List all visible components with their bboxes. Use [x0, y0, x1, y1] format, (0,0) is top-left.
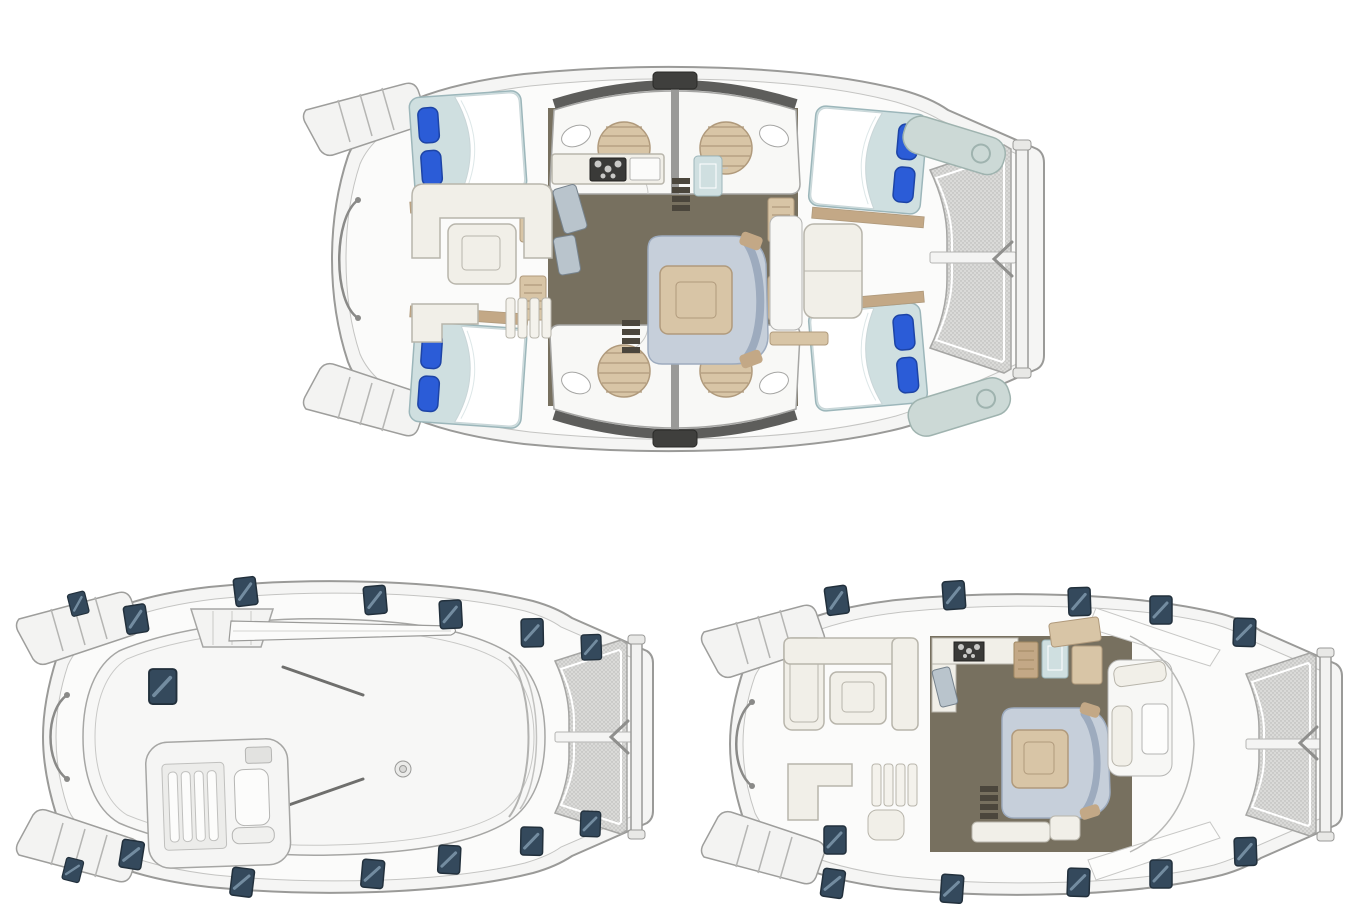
cabinet-right — [1072, 646, 1102, 684]
forward-table — [1142, 704, 1168, 754]
forward-beam — [1320, 652, 1331, 837]
forward-beam — [1016, 144, 1028, 374]
beam-cap-top — [1013, 140, 1031, 150]
beam-cap-bottom — [1013, 368, 1031, 378]
nav-panel — [694, 156, 722, 196]
forward-beam — [631, 639, 642, 835]
helm-seat — [868, 810, 904, 840]
stove — [954, 642, 984, 661]
fridge — [630, 158, 660, 180]
forward-bench — [1112, 706, 1132, 766]
lower-deck-plan — [300, 52, 1065, 467]
double-bed-aft-port — [409, 90, 528, 198]
trampoline — [930, 140, 1031, 378]
salon-table — [1012, 730, 1068, 788]
cockpit-table — [448, 224, 516, 284]
salon — [1002, 701, 1110, 821]
aft-bench-seat — [1050, 816, 1080, 840]
main-deck-plan — [700, 580, 1363, 909]
helm-seat — [234, 769, 270, 826]
beam-cap-top — [1317, 648, 1334, 657]
seat-panel — [770, 216, 802, 330]
cockpit-floor-hatch — [824, 826, 846, 854]
winch — [395, 761, 411, 777]
salon-table — [660, 266, 732, 334]
beam-cap-bottom — [628, 830, 645, 839]
trampoline-seam — [1246, 739, 1322, 749]
forward-cockpit — [1108, 660, 1172, 776]
aft-bench — [972, 822, 1050, 842]
beam-cap-top — [628, 635, 645, 644]
beam-cap-bottom — [1317, 832, 1334, 841]
instrument-pod — [245, 747, 272, 764]
trampoline — [1246, 648, 1334, 841]
exterior-top-view — [15, 565, 665, 909]
trampoline — [555, 635, 645, 839]
helm-station — [145, 738, 291, 869]
helm-seat-back — [232, 827, 275, 844]
cockpit-sofa-arm-right — [892, 638, 918, 730]
stove — [590, 158, 626, 181]
cockpit-table — [830, 672, 886, 724]
wood-step — [770, 332, 828, 345]
trampoline-seam — [555, 732, 635, 742]
drawer-unit — [1014, 642, 1038, 678]
floorplan-sheet — [0, 0, 1363, 909]
trampoline-seam — [930, 252, 1016, 263]
